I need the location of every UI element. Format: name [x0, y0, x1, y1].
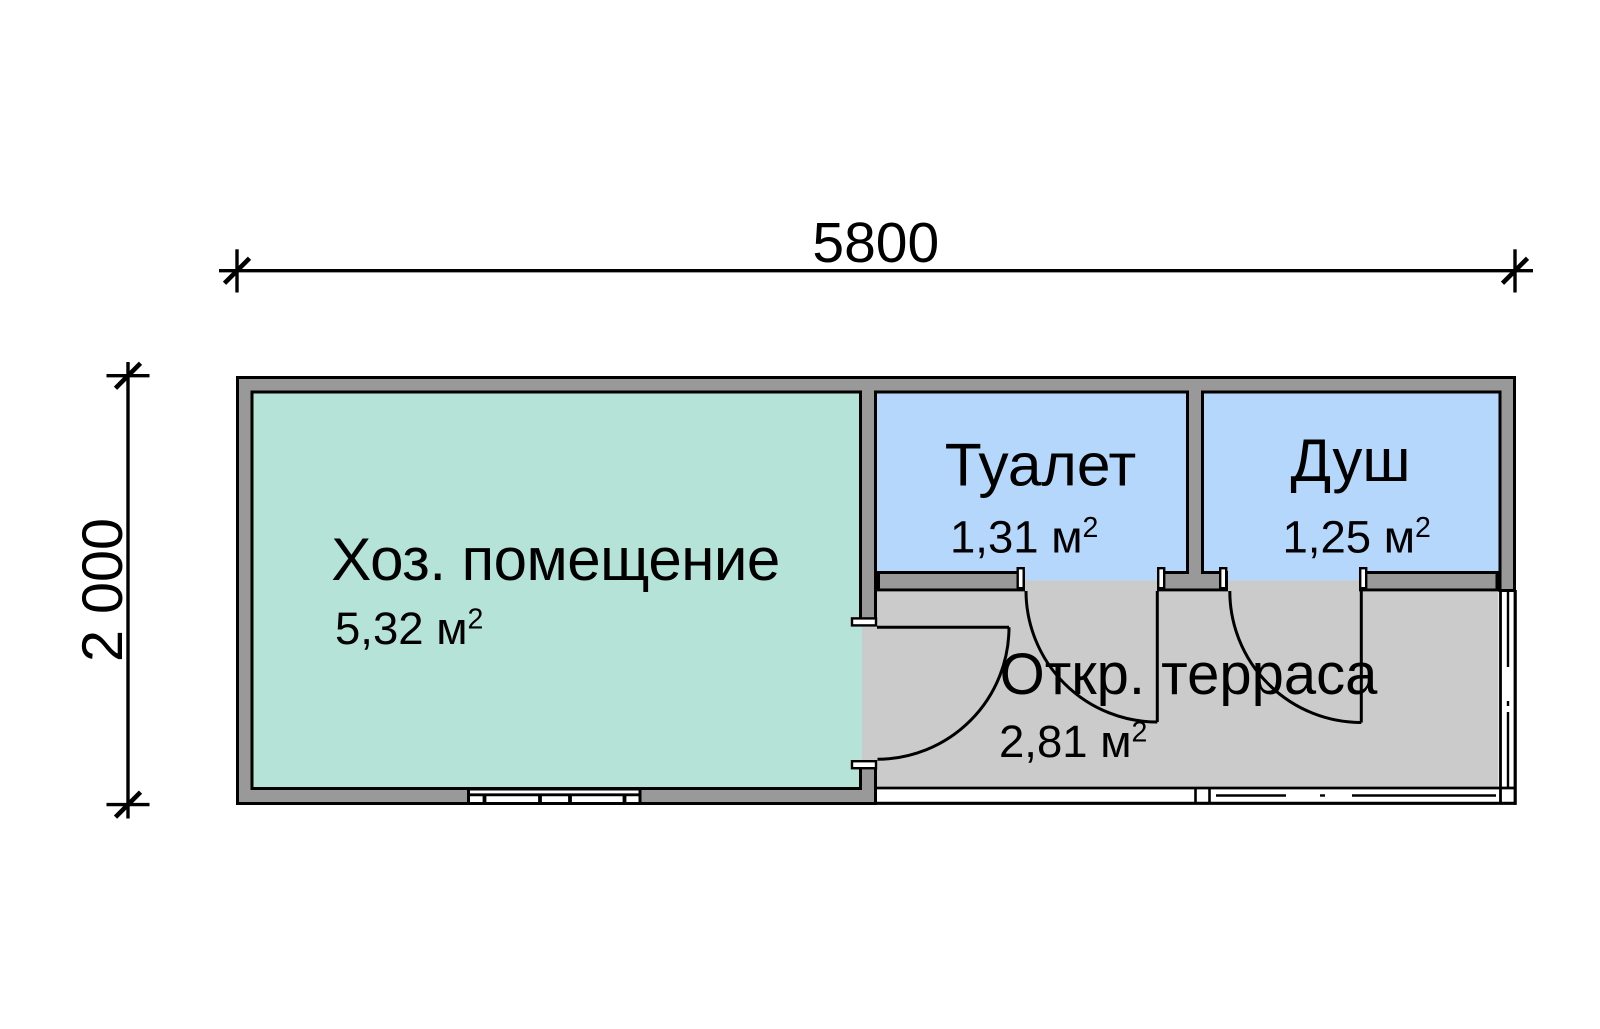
- svg-text:5800: 5800: [812, 211, 939, 275]
- svg-text:Туалет: Туалет: [945, 431, 1136, 499]
- svg-text:1,25 м2: 1,25 м2: [1283, 512, 1431, 563]
- svg-text:5,32 м2: 5,32 м2: [335, 603, 483, 654]
- svg-text:1,31 м2: 1,31 м2: [950, 512, 1098, 563]
- svg-text:Хоз. помещение: Хоз. помещение: [331, 526, 779, 593]
- svg-text:Душ: Душ: [1290, 427, 1410, 494]
- svg-text:Откр. терраса: Откр. терраса: [1000, 642, 1378, 707]
- svg-text:2,81 м2: 2,81 м2: [999, 716, 1147, 767]
- svg-text:2 000: 2 000: [71, 518, 135, 662]
